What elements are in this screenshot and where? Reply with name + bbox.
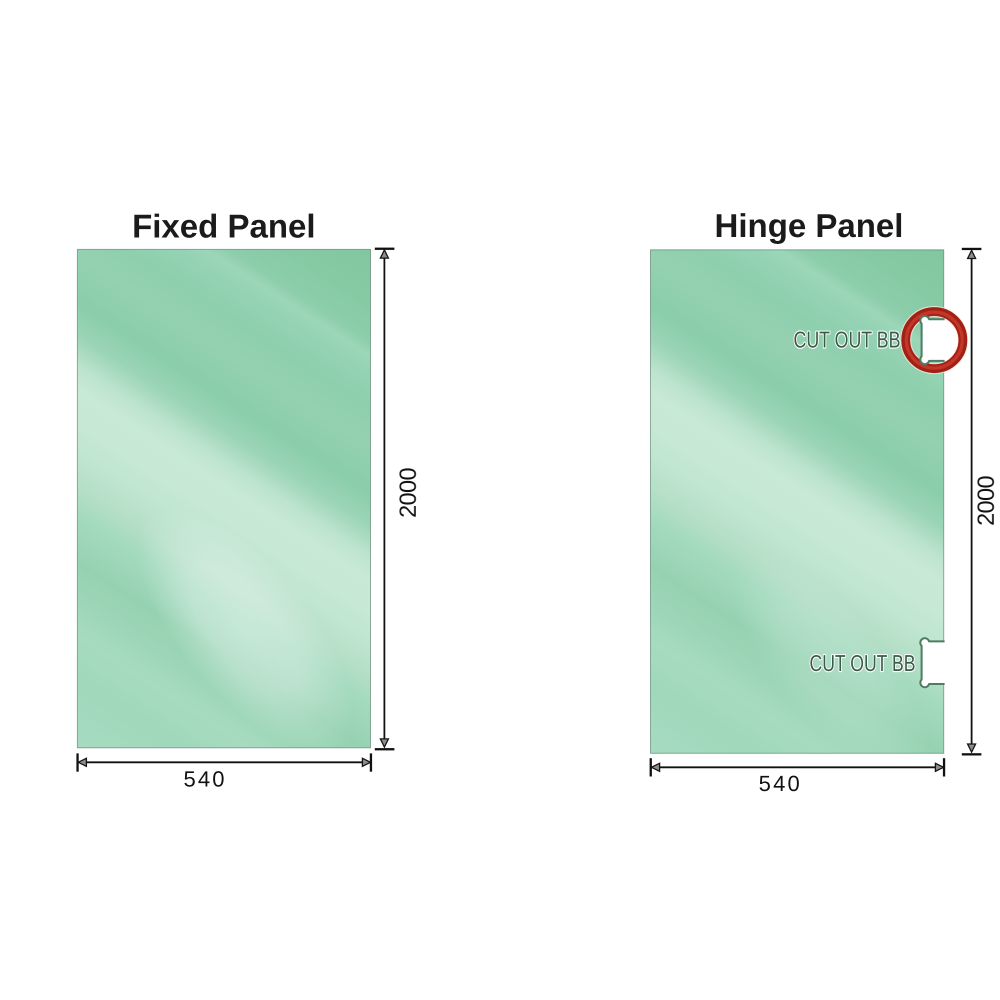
- svg-text:Fixed Panel: Fixed Panel: [132, 208, 315, 245]
- svg-text:540: 540: [183, 767, 226, 792]
- svg-text:540: 540: [759, 771, 802, 796]
- svg-text:Hinge Panel: Hinge Panel: [715, 207, 904, 244]
- svg-text:2000: 2000: [973, 476, 999, 526]
- svg-text:2000: 2000: [395, 468, 421, 518]
- svg-text:CUT OUT BB: CUT OUT BB: [794, 326, 901, 352]
- svg-text:CUT OUT BB: CUT OUT BB: [810, 650, 916, 676]
